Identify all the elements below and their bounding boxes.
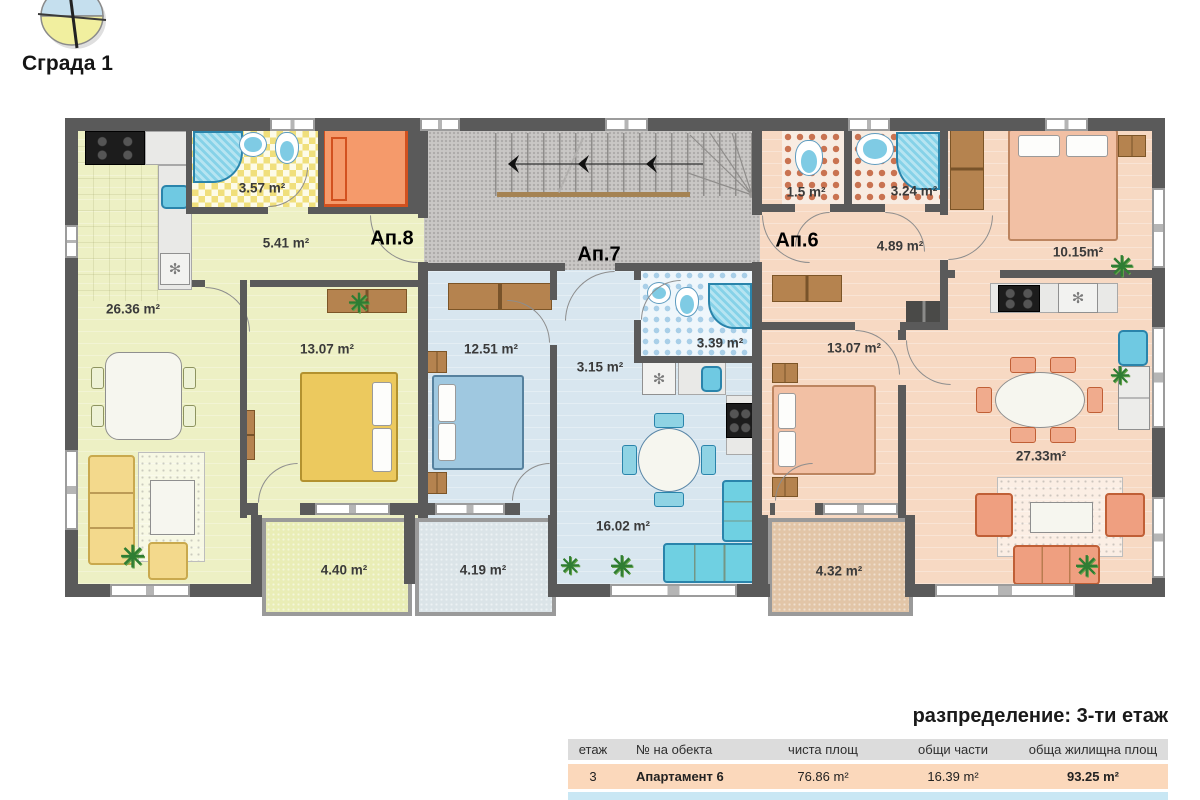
window [315, 503, 390, 515]
window [823, 503, 898, 515]
chair-icon [183, 405, 196, 427]
bed-icon [772, 385, 876, 475]
wall-segment [905, 515, 915, 584]
wall-segment [634, 270, 641, 280]
chair-icon [1087, 387, 1103, 413]
wall-segment [634, 356, 756, 363]
plant-icon: ✳ [610, 553, 633, 581]
wall-segment [550, 270, 557, 300]
chair-icon [91, 367, 104, 389]
stove-icon [85, 131, 145, 165]
bed-icon [432, 375, 524, 470]
stair-rail [497, 192, 690, 197]
shower-icon [896, 132, 940, 190]
nightstand-icon [427, 472, 447, 494]
window [935, 584, 1075, 597]
wall-segment [762, 204, 795, 212]
wall-segment [548, 515, 557, 584]
wall-segment [247, 503, 258, 515]
wall-segment [752, 131, 762, 215]
chair-icon [1050, 357, 1076, 373]
ap7-label: Ап.7 [577, 244, 620, 267]
chair-icon [1050, 427, 1076, 443]
toilet-icon [275, 132, 299, 164]
stair-direction-arrow [505, 150, 705, 178]
ap8-living-area: 26.36 m² [106, 302, 160, 317]
kitchen-sink-icon [701, 366, 722, 392]
window [65, 450, 78, 530]
bathroom-sink-icon [856, 133, 894, 165]
floor-plan-page: Сграда 1 [0, 0, 1200, 800]
cell-total-area: 93.25 m² [1018, 769, 1168, 784]
chair-icon [654, 413, 684, 428]
ap8-balcony-area: 4.40 m² [321, 563, 368, 578]
plant-icon: ✳ [120, 543, 145, 573]
nightstand-icon [772, 363, 798, 383]
ap8-bedroom-area: 13.07 m² [300, 342, 354, 357]
wall-segment [250, 280, 418, 287]
wall-segment [318, 207, 418, 214]
wardrobe-icon [772, 275, 842, 302]
wall-segment [408, 126, 418, 214]
window [1152, 188, 1165, 268]
wall-segment [757, 515, 768, 584]
sofa-icon [663, 543, 757, 583]
header-net-area: чиста площ [758, 742, 888, 757]
armchair-icon [148, 542, 188, 580]
ap6-bedroom-area: 13.07 m² [827, 341, 881, 356]
plant-icon: ✳ [348, 290, 370, 316]
wall-segment [940, 131, 948, 215]
ap7-hall-area: 3.15 m² [577, 360, 624, 375]
stove-icon [998, 285, 1040, 312]
kitchen-sink-icon [1118, 330, 1148, 366]
ap6-living-area: 27.33m² [1016, 449, 1066, 464]
nightstand-icon [427, 351, 447, 373]
nightstand-icon [1118, 135, 1146, 157]
bathroom-sink-icon [239, 132, 267, 157]
stove-icon [726, 403, 754, 438]
window [1152, 497, 1165, 578]
wall-segment [948, 270, 955, 278]
window [270, 118, 315, 131]
wall-segment [770, 503, 775, 515]
fan-glyph: ✻ [653, 370, 666, 388]
fan-glyph: ✻ [1072, 289, 1085, 307]
ap6-bath-area: 3.24 m² [891, 184, 938, 199]
plant-icon: ✳ [560, 555, 580, 579]
cell-floor: 3 [568, 769, 618, 784]
wall-segment [192, 280, 205, 287]
wall-segment [830, 204, 885, 212]
coffee-table-icon [1030, 502, 1093, 533]
bed-icon [1008, 129, 1118, 241]
cell-common-area: 16.39 m² [888, 769, 1018, 784]
chair-icon [91, 405, 104, 427]
header-unit: № на обекта [618, 742, 758, 757]
window [110, 584, 190, 597]
wall-segment [308, 207, 318, 214]
table-row: 3 Апартамент 7 46.15 m² 10.16 m² 56.31 m… [568, 792, 1168, 800]
wall-segment [318, 126, 324, 214]
wall-segment [418, 262, 428, 518]
wall-segment [762, 322, 855, 330]
wall-segment [404, 515, 415, 584]
ap6-hall-area: 4.89 m² [877, 239, 924, 254]
window [435, 503, 505, 515]
wall-segment [251, 515, 262, 584]
coffee-table-icon [150, 480, 195, 535]
chair-icon [701, 445, 716, 475]
ap6-balcony-area: 4.32 m² [816, 564, 863, 579]
chair-icon [622, 445, 637, 475]
elevator-shaft [322, 126, 408, 207]
ap6-wc-area: 1.5 m² [786, 185, 825, 200]
window [420, 118, 460, 131]
table-header-row: етаж № на обекта чиста площ общи части о… [568, 739, 1168, 760]
window [610, 584, 737, 597]
wall-segment [186, 131, 192, 207]
chair-icon [654, 492, 684, 507]
ap8-label: Ап.8 [370, 228, 413, 251]
dining-table-icon [105, 352, 182, 440]
header-common-area: общи части [888, 742, 1018, 757]
chair-icon [1010, 427, 1036, 443]
wall-segment [240, 280, 247, 518]
window [848, 118, 890, 131]
ap7-living-area: 16.02 m² [596, 519, 650, 534]
wall-segment [424, 263, 565, 271]
armchair-icon [975, 493, 1013, 537]
chair-icon [976, 387, 992, 413]
armchair-icon [1105, 493, 1145, 537]
kitchen-sink-icon [161, 185, 189, 209]
chair-icon [183, 367, 196, 389]
cell-unit: Апартамент 6 [618, 769, 758, 784]
bed-icon [300, 372, 398, 482]
wardrobe-icon [950, 128, 984, 210]
ap8-bath-area: 3.57 m² [239, 181, 286, 196]
dining-table-icon [995, 372, 1085, 428]
header-total-area: обща жилищна площ [1018, 742, 1168, 757]
wardrobe-icon [448, 283, 552, 310]
kitchen-counter [145, 131, 192, 165]
wall-segment [898, 385, 906, 518]
fan-glyph: ✻ [169, 260, 182, 278]
wall-segment [186, 207, 268, 214]
table-row: 3 Апартамент 6 76.86 m² 16.39 m² 93.25 m… [568, 764, 1168, 789]
header-floor: етаж [568, 742, 618, 757]
window [65, 225, 78, 258]
washing-machine-icon: ✻ [160, 253, 190, 285]
wall-segment [900, 322, 940, 330]
window [1045, 118, 1088, 131]
chair-icon [1010, 357, 1036, 373]
plant-icon: ✳ [1110, 365, 1130, 389]
building-title: Сграда 1 [22, 52, 113, 76]
wall-segment [418, 131, 428, 218]
ap7-bedroom-area: 12.51 m² [464, 342, 518, 357]
distribution-title: разпределение: 3-ти етаж [913, 705, 1168, 728]
wall-segment [844, 131, 852, 204]
cell-net-area: 76.86 m² [758, 769, 888, 784]
ap8-hall-area: 5.41 m² [263, 236, 310, 251]
ap7-bath-area: 3.39 m² [697, 336, 744, 351]
washing-machine-icon: ✻ [642, 362, 676, 395]
ap6-bedroom-top-area: 10.15m² [1053, 245, 1103, 260]
compass-icon [33, 0, 111, 50]
window [1152, 327, 1165, 428]
plant-icon: ✳ [1110, 253, 1133, 281]
wall-segment [940, 260, 948, 330]
ap6-label: Ап.6 [775, 230, 818, 253]
window [605, 118, 648, 131]
wall-segment [898, 330, 906, 340]
wall-segment [550, 345, 557, 518]
plant-icon: ✳ [1075, 553, 1098, 581]
floor-plan: ✻ ✳ ✳ ✻ [65, 115, 1165, 615]
distribution-table: етаж № на обекта чиста площ общи части о… [568, 739, 1168, 800]
toilet-icon [795, 140, 823, 176]
washing-machine-icon: ✻ [1058, 283, 1098, 313]
round-table-icon [638, 428, 700, 492]
ap7-balcony-area: 4.19 m² [460, 563, 507, 578]
